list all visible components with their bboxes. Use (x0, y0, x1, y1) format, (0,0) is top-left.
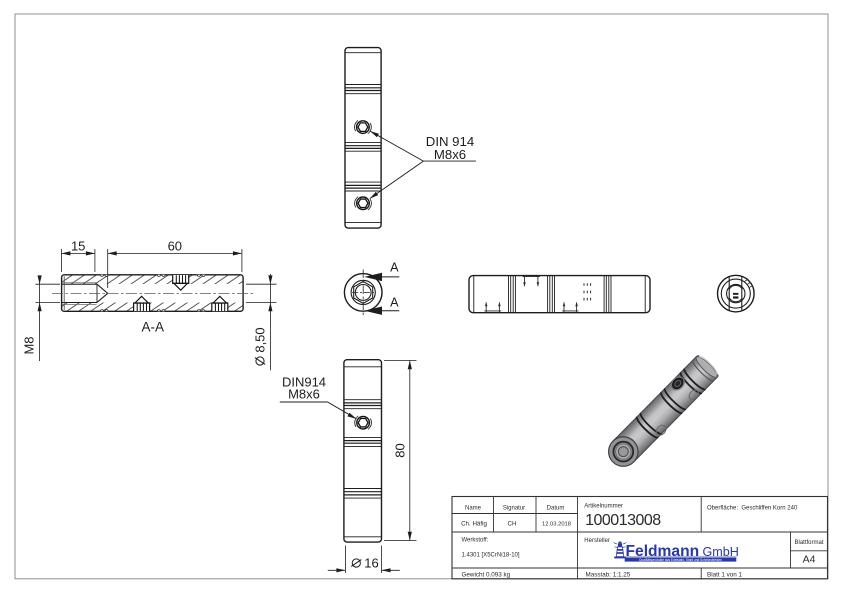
svg-text:A4: A4 (803, 554, 816, 566)
svg-text:80: 80 (392, 443, 407, 457)
svg-text:M8x6: M8x6 (288, 387, 320, 402)
svg-text:15: 15 (71, 239, 85, 254)
svg-text:M8x6: M8x6 (434, 147, 466, 162)
svg-text:12.03.2018: 12.03.2018 (542, 521, 571, 527)
svg-text:Blatt 1 von 1: Blatt 1 von 1 (707, 571, 743, 578)
svg-text:CH: CH (508, 520, 517, 527)
svg-text:8,50: 8,50 (252, 327, 267, 352)
svg-text:Qualitätsprodukte aus Edelstah: Qualitätsprodukte aus Edelstahl, Stahl u… (639, 558, 722, 562)
svg-text:Oberfläche: Geschliffen Korn: Oberfläche: Geschliffen Korn 240 (707, 505, 798, 511)
svg-text:60: 60 (168, 239, 182, 254)
svg-text:Blattformat: Blattformat (794, 540, 823, 546)
svg-text:Hersteller: Hersteller (584, 538, 610, 544)
svg-text:A: A (390, 296, 399, 310)
svg-text:Name: Name (465, 506, 482, 512)
svg-text:Masstab: 1:1.25: Masstab: 1:1.25 (586, 571, 631, 578)
svg-text:Werkstoff:: Werkstoff: (462, 538, 489, 544)
svg-text:Datum: Datum (547, 506, 565, 512)
svg-text:16: 16 (364, 555, 378, 570)
svg-text:M8: M8 (22, 336, 37, 354)
svg-text:A: A (390, 260, 399, 274)
svg-text:Artikelnummer: Artikelnummer (584, 503, 623, 509)
svg-text:Signatur: Signatur (503, 506, 525, 512)
svg-text:Ch. Häfig: Ch. Häfig (461, 520, 487, 527)
svg-text:100013008: 100013008 (585, 512, 661, 529)
svg-text:1.4301 [X5CrNi18-10]: 1.4301 [X5CrNi18-10] (462, 553, 520, 559)
svg-text:Gewicht 0.093 kg: Gewicht 0.093 kg (462, 571, 511, 578)
svg-text:A-A: A-A (141, 320, 164, 335)
